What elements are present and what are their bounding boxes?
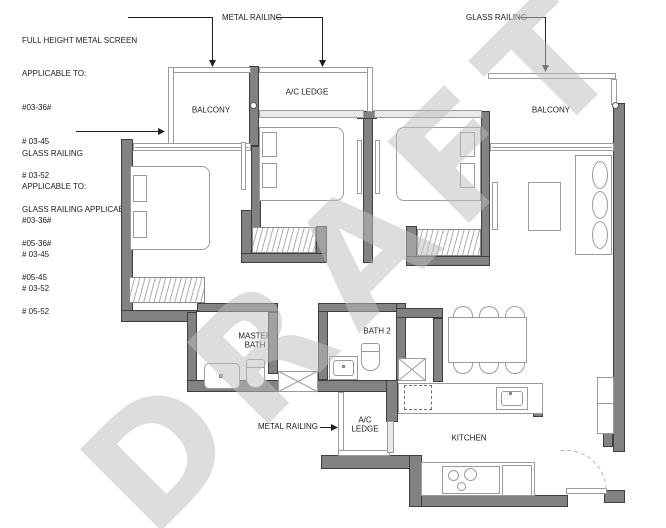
annotation-line: FULL HEIGHT METAL SCREEN	[22, 35, 149, 46]
burner	[464, 468, 477, 481]
wall-panel	[375, 140, 380, 194]
wall	[241, 253, 327, 263]
dining-table	[448, 317, 527, 363]
dining-chair	[453, 363, 473, 374]
window	[259, 110, 364, 118]
callout-glass-railing-top: GLASS RAILING	[466, 12, 527, 23]
db-storage-cabinet	[597, 377, 614, 434]
glass-railing	[168, 67, 174, 146]
toilet	[361, 343, 380, 371]
burner	[457, 482, 466, 491]
sofa-cushion	[592, 221, 608, 249]
room-label-ac-ledge-top: A/C LEDGE	[286, 87, 329, 96]
toilet-tank-line	[247, 367, 264, 368]
arrowhead	[209, 60, 216, 67]
wall	[363, 118, 373, 263]
sofa-cushion	[592, 191, 608, 219]
fridge	[502, 465, 532, 496]
wall	[318, 303, 328, 380]
arrowhead	[319, 60, 326, 67]
wall	[121, 310, 197, 322]
wall	[406, 256, 490, 266]
arrowhead	[158, 128, 165, 135]
room-label-bath2: BATH 2	[363, 326, 390, 335]
wardrobe	[129, 277, 205, 303]
wall-panel	[241, 142, 246, 190]
room-label-balcony-right: BALCONY	[532, 105, 570, 114]
metal-railing	[259, 67, 373, 73]
sliding-door	[133, 143, 251, 151]
glass-railing	[488, 73, 616, 79]
leader-glass-railing-top	[518, 18, 546, 66]
sliding-door	[490, 143, 614, 151]
metal-railing	[338, 392, 344, 456]
room-label-balcony-left: BALCONY	[192, 105, 230, 114]
room-label-ac-ledge-bottom: A/C LEDGE	[351, 416, 378, 435]
wardrobe	[417, 229, 481, 256]
dining-chair	[479, 363, 499, 374]
annotation-line: GLASS RAILING	[22, 148, 86, 159]
pillow	[262, 132, 277, 157]
arrowhead	[542, 65, 549, 72]
annotation-line: #03-36#	[22, 215, 86, 226]
burner	[448, 470, 459, 481]
room-label-master-bath: MASTER BATH	[238, 332, 271, 351]
faucet	[509, 392, 512, 395]
floor-plan: BALCONY A/C LEDGE BALCONY MASTER BEDROOM…	[0, 0, 666, 528]
faucet	[342, 365, 345, 368]
pillow	[133, 211, 147, 238]
pillow	[460, 163, 475, 188]
coffee-table	[528, 182, 561, 231]
vanity-basin	[333, 360, 354, 376]
duct-shaft	[278, 371, 318, 392]
room-label-kitchen: KITCHEN	[451, 433, 486, 442]
metal-railing	[367, 67, 373, 112]
wall	[268, 312, 278, 374]
wall	[386, 380, 398, 422]
dining-chair	[479, 306, 499, 317]
annotation-line: #03-36#	[22, 102, 149, 113]
wall	[197, 303, 278, 312]
washer	[404, 385, 432, 410]
glass-railing	[168, 67, 251, 73]
entry-door-leaf	[566, 488, 607, 494]
wall	[396, 308, 443, 318]
pillow	[460, 132, 475, 157]
annotation-line: # 03-45	[22, 249, 86, 260]
metal-railing	[338, 450, 390, 456]
dining-chair	[505, 363, 525, 374]
annotation-line: APPLICABLE TO:	[22, 181, 86, 192]
wall	[318, 303, 406, 312]
downpipe	[612, 102, 619, 109]
downpipe	[250, 102, 257, 109]
duct-shaft	[398, 358, 426, 381]
shower-drain	[219, 374, 223, 378]
arrowhead	[331, 424, 338, 431]
wall	[421, 495, 568, 507]
wall	[433, 318, 443, 382]
entry-door-swing-arc	[559, 450, 606, 489]
cabinet-divider	[598, 403, 613, 404]
wall	[321, 455, 422, 469]
pillow	[262, 163, 277, 188]
wardrobe	[252, 227, 316, 253]
callout-metal-railing-top: METAL RAILING	[222, 12, 282, 23]
wall	[604, 490, 625, 503]
dining-chair	[505, 306, 525, 317]
annotation-glass-railing-left: GLASS RAILING APPLICABLE TO: #03-36# # 0…	[22, 125, 86, 317]
annotation-line: APPLICABLE TO:	[22, 68, 149, 79]
toilet-tank-line	[362, 351, 379, 352]
window	[374, 110, 482, 118]
dining-chair	[453, 306, 473, 317]
toilet	[246, 359, 265, 388]
pillow	[133, 175, 147, 202]
kitchen-sink-basin	[501, 391, 523, 406]
annotation-line: # 03-52	[22, 283, 86, 294]
wall	[603, 433, 613, 447]
tv-console	[492, 182, 498, 230]
leader-metal-railing-top	[276, 18, 323, 61]
wall	[481, 111, 490, 262]
callout-metal-railing-bottom: METAL RAILING	[240, 421, 318, 432]
window	[387, 421, 394, 453]
wall-panel	[357, 140, 362, 194]
wall	[613, 103, 625, 452]
sofa-cushion	[592, 161, 608, 189]
